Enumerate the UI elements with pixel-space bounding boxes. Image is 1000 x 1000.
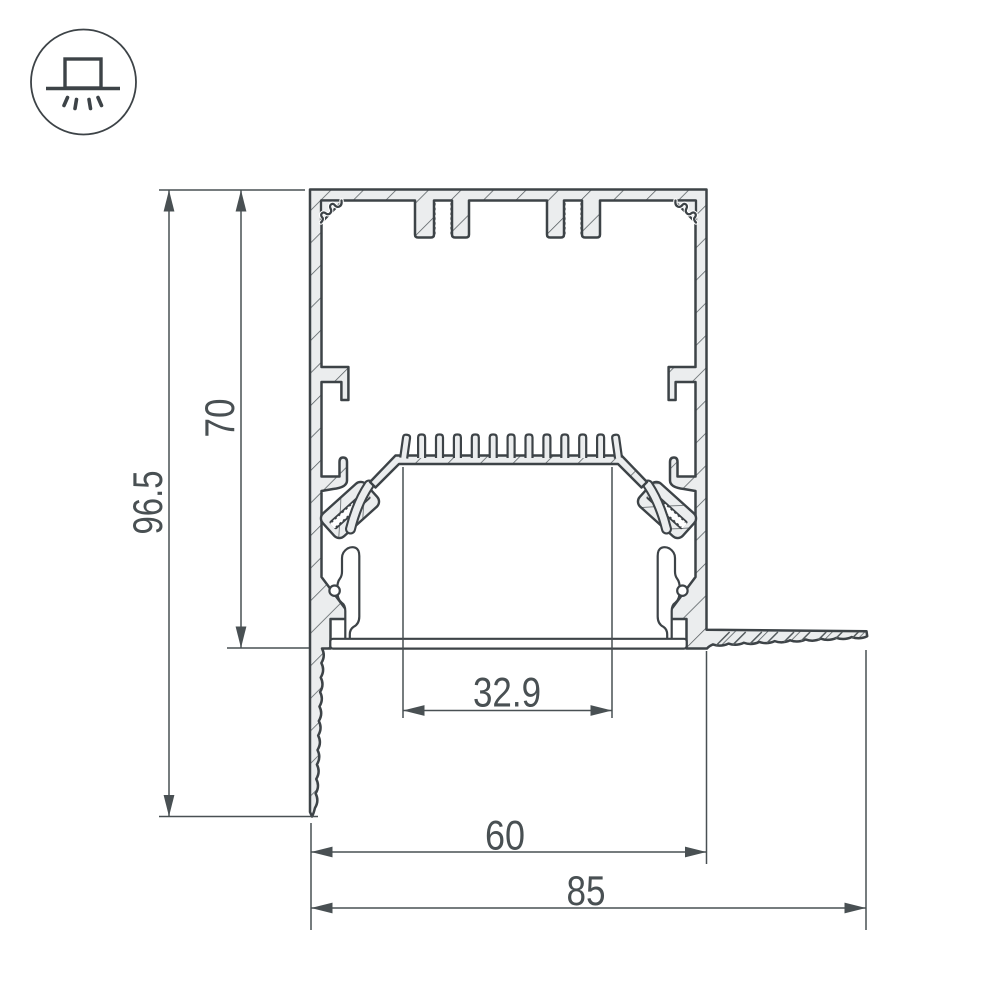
svg-text:85: 85 [567, 867, 606, 914]
svg-text:70: 70 [196, 399, 243, 438]
svg-text:32.9: 32.9 [473, 669, 541, 716]
svg-text:60: 60 [485, 812, 525, 859]
svg-text:96.5: 96.5 [124, 471, 171, 535]
